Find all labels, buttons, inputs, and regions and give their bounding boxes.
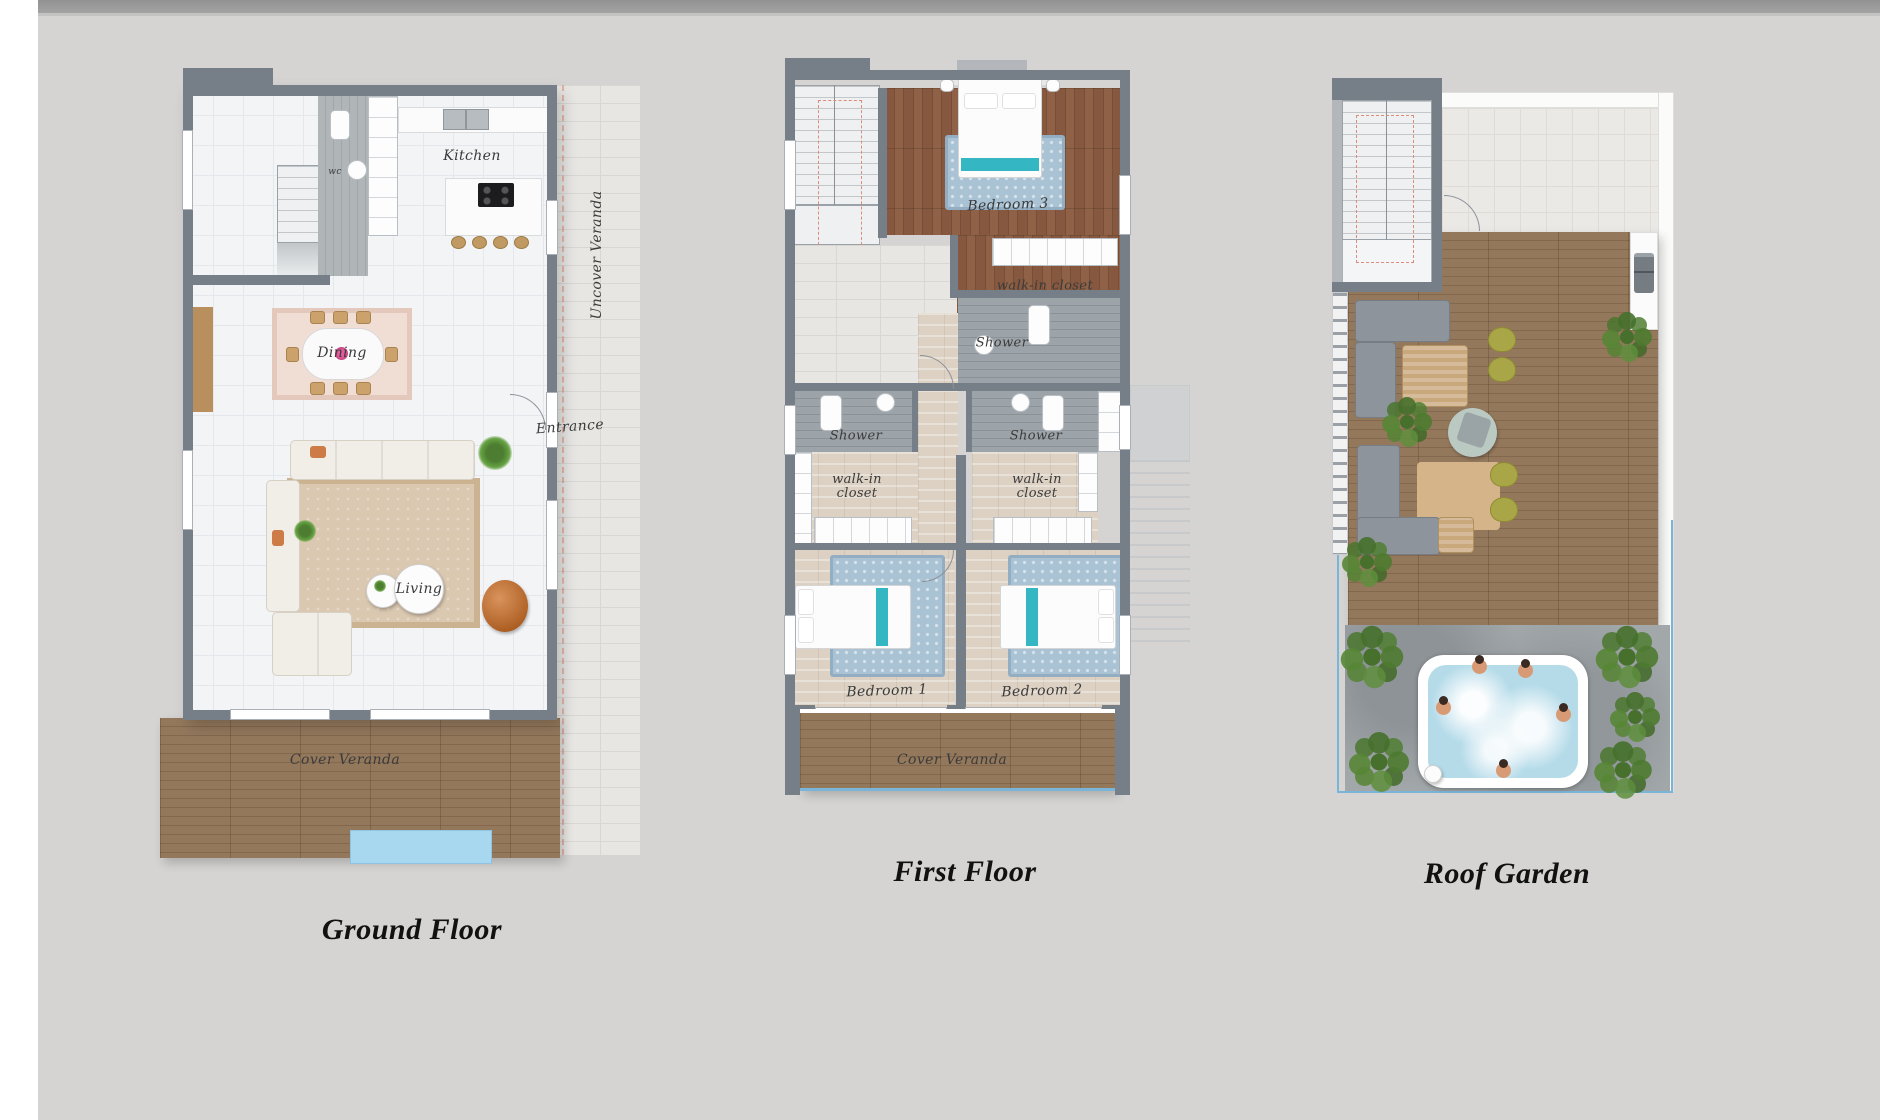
- louver-screen: [1332, 292, 1348, 555]
- walkin-closet3-label: walk-in closet: [997, 279, 1093, 294]
- bedroom3-label: Bedroom 3: [967, 196, 1049, 215]
- wc-label: wc: [328, 167, 342, 177]
- glass-balustrade: [800, 788, 1115, 791]
- wall-interior: [966, 391, 972, 452]
- dining-chair: [333, 311, 348, 324]
- roof-garden-caption: Roof Garden: [1424, 857, 1590, 891]
- wall-left-light: [1332, 100, 1342, 282]
- first-floor-plan: Bedroom 3 walk-in closet Shower Shower S…: [780, 55, 1200, 895]
- stair-landing: [277, 243, 321, 279]
- hanging-chair: [482, 580, 528, 632]
- outdoor-sofa: [1355, 342, 1396, 418]
- bedroom2-label: Bedroom 2: [1001, 682, 1083, 701]
- veranda-side-wall: [785, 705, 800, 795]
- uncover-veranda-label: Uncover Veranda: [589, 191, 605, 320]
- nightstand: [940, 79, 954, 92]
- shower-left-label: Shower: [830, 429, 883, 444]
- olive-armchair: [1490, 462, 1518, 487]
- person: [1472, 659, 1487, 674]
- bar-stool: [514, 236, 529, 249]
- person: [1556, 707, 1571, 722]
- corner-sofa: [272, 612, 352, 676]
- sofa: [266, 480, 300, 612]
- top-bar: [38, 0, 1880, 16]
- lounge-mat: [1402, 345, 1468, 407]
- window: [784, 615, 796, 675]
- setback-dashed-line: [562, 85, 564, 855]
- window: [182, 450, 193, 530]
- roof-skylight: [1130, 385, 1190, 462]
- toilet: [1042, 395, 1064, 431]
- wash-basin: [347, 160, 367, 180]
- wall-top: [1332, 78, 1442, 100]
- olive-armchair: [1490, 497, 1518, 522]
- nightstand: [1046, 79, 1060, 92]
- threshold: [800, 709, 1115, 713]
- bed-runner: [961, 158, 1039, 171]
- walkin-closet-right-label: walk-in closet: [1005, 473, 1069, 501]
- left-margin: [0, 0, 38, 1120]
- pillow: [798, 589, 814, 615]
- orange-cushion: [310, 446, 326, 458]
- plunge-pool: [350, 830, 492, 864]
- stair-void-dashed: [1356, 115, 1414, 263]
- wall-interior: [912, 391, 918, 452]
- dining-chair: [310, 311, 325, 324]
- palm-plant: [1628, 710, 1642, 724]
- closet-shelves: [992, 238, 1118, 266]
- window: [1119, 175, 1131, 235]
- window: [1119, 615, 1131, 675]
- staircase: [277, 165, 321, 243]
- potted-plant: [478, 436, 512, 470]
- outdoor-sofa: [1357, 517, 1440, 555]
- door-opening: [546, 200, 558, 255]
- walkin-closet-left-label: walk-in closet: [825, 473, 889, 501]
- bed-runner: [876, 588, 888, 646]
- bar-stool: [451, 236, 466, 249]
- wash-basin: [876, 393, 895, 412]
- palm-plant: [1363, 648, 1381, 666]
- wash-basin: [1011, 393, 1030, 412]
- sliding-door: [230, 709, 330, 720]
- wall-top: [183, 85, 557, 96]
- stove-hob: [478, 183, 514, 207]
- wall-right: [1432, 78, 1442, 290]
- cover-veranda-deck: [800, 712, 1115, 790]
- roof-garden-plan: Roof Garden: [1320, 55, 1700, 895]
- window: [546, 500, 558, 590]
- corridor-floor: [918, 313, 958, 548]
- dining-chair: [356, 311, 371, 324]
- toilet: [330, 110, 350, 140]
- ground-floor-plan: Kitchen wc Dining Entrance Living Cover …: [160, 60, 650, 940]
- kitchen-sink: [443, 109, 489, 130]
- ground-floor-caption: Ground Floor: [322, 913, 502, 947]
- toilet: [820, 395, 842, 431]
- pergola-louvers: [1130, 460, 1190, 648]
- wall-bottom: [1332, 282, 1442, 292]
- bar-stool: [472, 236, 487, 249]
- potted-plant: [294, 520, 316, 542]
- palm-plant: [1618, 648, 1636, 666]
- pillow: [1002, 93, 1036, 109]
- pillow: [964, 93, 998, 109]
- bedroom1-label: Bedroom 1: [846, 682, 928, 701]
- dining-label: Dining: [317, 345, 367, 361]
- person: [1496, 763, 1511, 778]
- pantry-shelves: [368, 96, 398, 236]
- table-plant: [374, 580, 386, 592]
- potted-palm: [1360, 555, 1374, 569]
- shower-right-label: Shower: [1010, 429, 1063, 444]
- window: [784, 405, 796, 455]
- floor-plan-sheet: Kitchen wc Dining Entrance Living Cover …: [0, 0, 1880, 1120]
- dining-chair: [286, 347, 299, 362]
- person: [1436, 700, 1451, 715]
- wall-party: [956, 455, 966, 710]
- pillow: [1098, 589, 1114, 615]
- wall-interior: [183, 275, 330, 285]
- sliding-door: [370, 709, 490, 720]
- toilet: [1028, 305, 1050, 345]
- window: [182, 130, 193, 210]
- ottoman: [1438, 517, 1474, 553]
- veranda-side-wall: [1115, 705, 1130, 795]
- outdoor-sofa: [1355, 300, 1450, 342]
- pillow: [1098, 617, 1114, 643]
- closet-shelves: [1078, 452, 1098, 512]
- window: [784, 140, 796, 210]
- olive-armchair: [1488, 327, 1516, 352]
- potted-palm: [1400, 415, 1414, 429]
- first-floor-caption: First Floor: [893, 855, 1036, 889]
- dining-chair: [385, 347, 398, 362]
- dining-chair: [310, 382, 325, 395]
- kitchen-label: Kitchen: [443, 148, 501, 164]
- palm-plant: [1371, 754, 1388, 771]
- dining-chair: [356, 382, 371, 395]
- orange-cushion: [272, 530, 284, 546]
- pillow: [798, 617, 814, 643]
- parapet-top: [1440, 92, 1672, 108]
- stair-void-dashed: [818, 100, 862, 250]
- palm-plant: [1615, 762, 1631, 778]
- window: [1119, 405, 1131, 450]
- shower-top-label: Shower: [976, 336, 1029, 351]
- wall-interior: [878, 88, 887, 238]
- closet-shelves: [792, 452, 812, 548]
- cover-veranda-label: Cover Veranda: [290, 752, 400, 768]
- outdoor-sofa: [1357, 445, 1400, 525]
- dining-chair: [333, 382, 348, 395]
- bed-runner: [1026, 588, 1038, 646]
- wall-interior: [950, 235, 958, 295]
- wall-interior: [792, 383, 1122, 391]
- side-table: [1424, 765, 1442, 783]
- wall-top: [785, 70, 1130, 80]
- potted-palm: [1620, 330, 1634, 344]
- person: [1518, 663, 1533, 678]
- living-label: Living: [396, 581, 443, 597]
- wood-panel-door: [193, 307, 213, 412]
- outdoor-sink: [1634, 253, 1654, 293]
- cover-veranda-label: Cover Veranda: [897, 752, 1007, 768]
- bar-stool: [493, 236, 508, 249]
- olive-armchair: [1488, 357, 1516, 382]
